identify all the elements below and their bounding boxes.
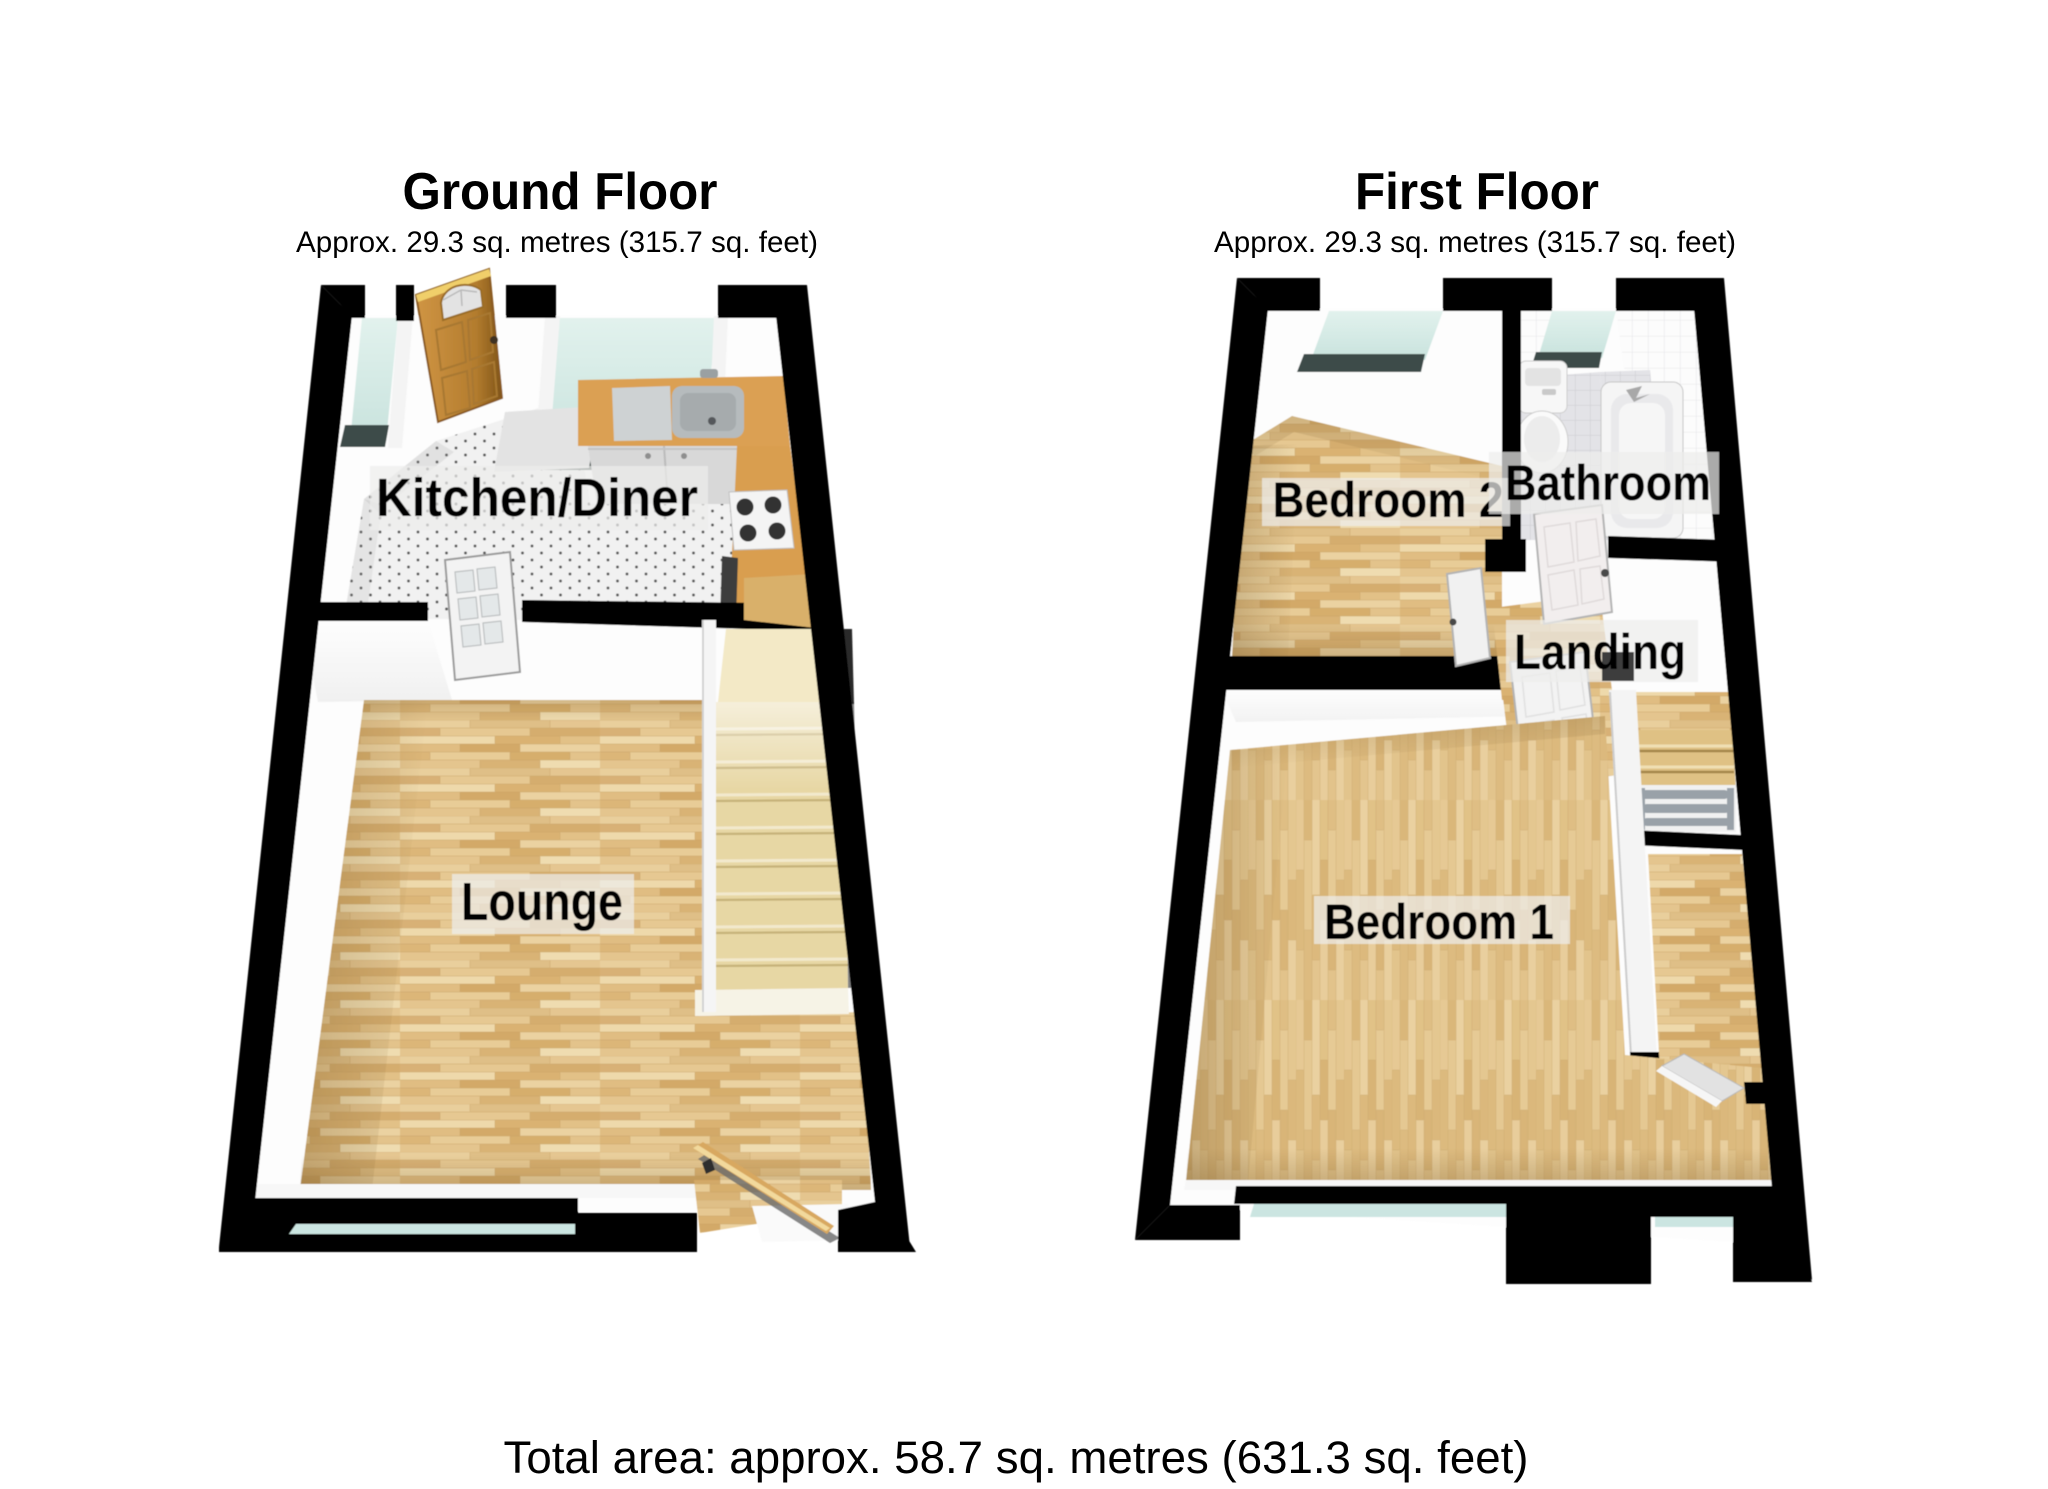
svg-text:Landing: Landing [1514,624,1686,680]
svg-text:Approx. 29.3 sq. metres (315.7: Approx. 29.3 sq. metres (315.7 sq. feet) [1214,226,1736,259]
svg-text:Ground Floor: Ground Floor [403,163,718,221]
svg-text:First Floor: First Floor [1355,163,1599,221]
svg-text:Total area: approx. 58.7 sq. m: Total area: approx. 58.7 sq. metres (631… [504,1432,1529,1483]
svg-text:Bathroom: Bathroom [1505,455,1711,511]
svg-text:Bedroom 2: Bedroom 2 [1273,472,1504,528]
svg-text:Lounge: Lounge [461,872,623,932]
svg-text:Kitchen/Diner: Kitchen/Diner [376,468,698,528]
svg-text:Approx. 29.3 sq. metres (315.7: Approx. 29.3 sq. metres (315.7 sq. feet) [296,226,818,259]
svg-text:Bedroom 1: Bedroom 1 [1324,894,1554,950]
